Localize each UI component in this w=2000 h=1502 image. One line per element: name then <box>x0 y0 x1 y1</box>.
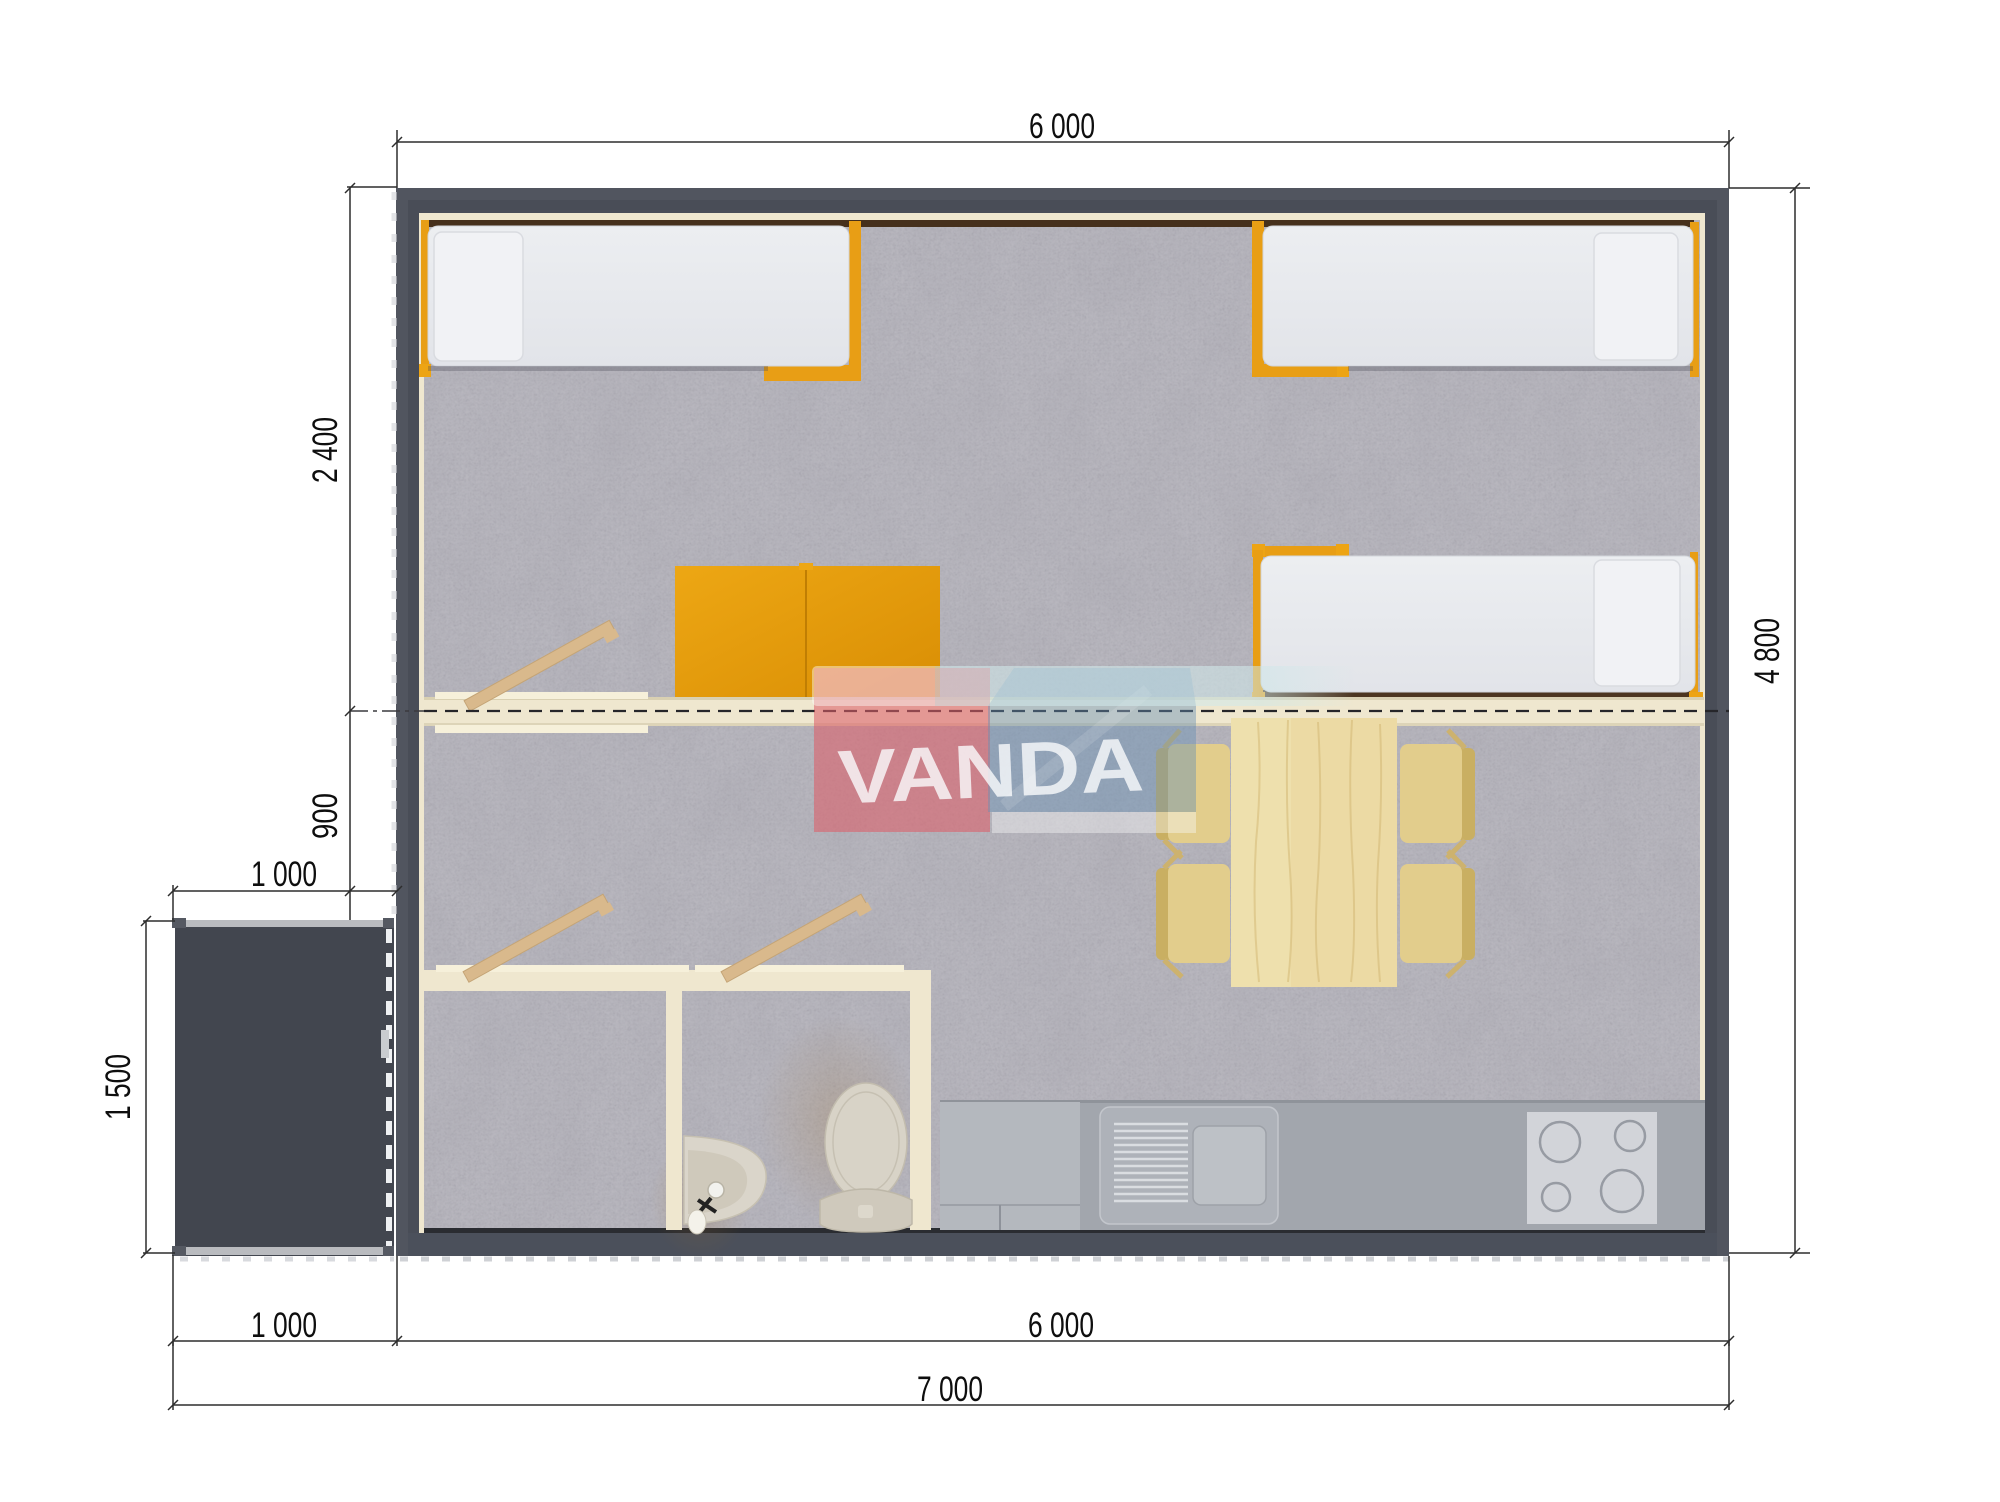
svg-text:4 800: 4 800 <box>1748 618 1787 684</box>
svg-text:1 000: 1 000 <box>251 855 317 894</box>
svg-text:6 000: 6 000 <box>1029 107 1095 146</box>
svg-text:1 500: 1 500 <box>99 1054 138 1120</box>
svg-text:1 000: 1 000 <box>251 1306 317 1345</box>
svg-text:900: 900 <box>306 793 345 839</box>
svg-text:2 400: 2 400 <box>306 417 345 483</box>
svg-text:VANDA: VANDA <box>836 722 1145 820</box>
svg-text:6 000: 6 000 <box>1028 1306 1094 1345</box>
svg-text:7 000: 7 000 <box>917 1370 983 1409</box>
